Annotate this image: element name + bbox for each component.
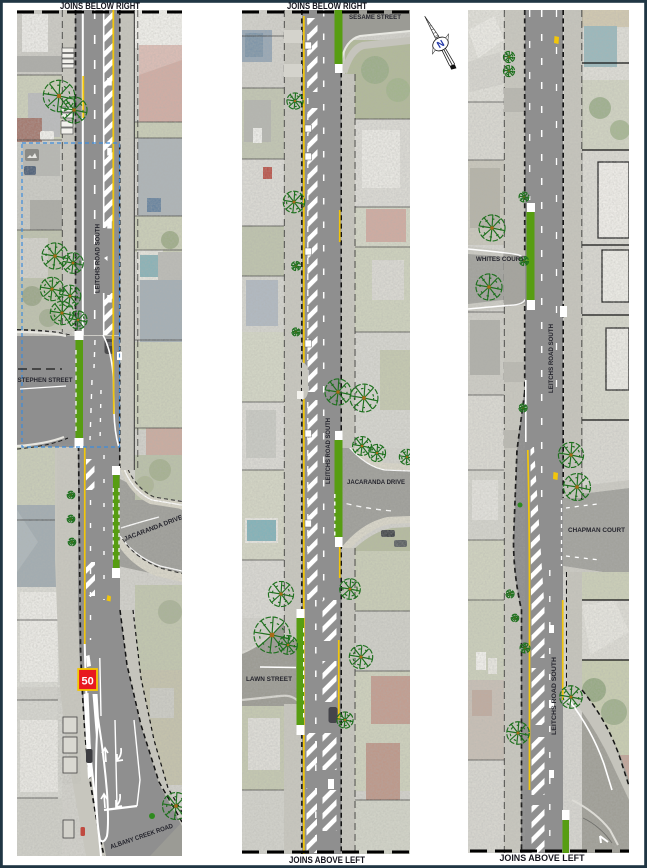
svg-text:LEITCHS ROAD SOUTH: LEITCHS ROAD SOUTH <box>551 657 558 735</box>
svg-text:JACARANDA DRIVE: JACARANDA DRIVE <box>347 479 406 486</box>
svg-text:LEITCHS ROAD SOUTH: LEITCHS ROAD SOUTH <box>95 224 102 293</box>
svg-text:CHAPMAN COURT: CHAPMAN COURT <box>568 527 625 534</box>
svg-text:JOINS BELOW RIGHT: JOINS BELOW RIGHT <box>287 1 367 11</box>
svg-text:SESAME STREET: SESAME STREET <box>349 14 401 21</box>
svg-text:STEPHEN STREET: STEPHEN STREET <box>18 377 73 384</box>
svg-text:JOINS ABOVE LEFT: JOINS ABOVE LEFT <box>500 853 585 863</box>
svg-text:LEITCHS ROAD SOUTH: LEITCHS ROAD SOUTH <box>548 324 555 393</box>
svg-text:JOINS BELOW RIGHT: JOINS BELOW RIGHT <box>60 1 140 11</box>
svg-text:JOINS ABOVE LEFT: JOINS ABOVE LEFT <box>289 855 365 865</box>
svg-text:LAWN STREET: LAWN STREET <box>246 676 292 683</box>
svg-text:50: 50 <box>81 676 93 688</box>
svg-text:WHITES COURT: WHITES COURT <box>476 256 524 263</box>
svg-text:LEITCHS ROAD SOUTH: LEITCHS ROAD SOUTH <box>325 418 332 484</box>
